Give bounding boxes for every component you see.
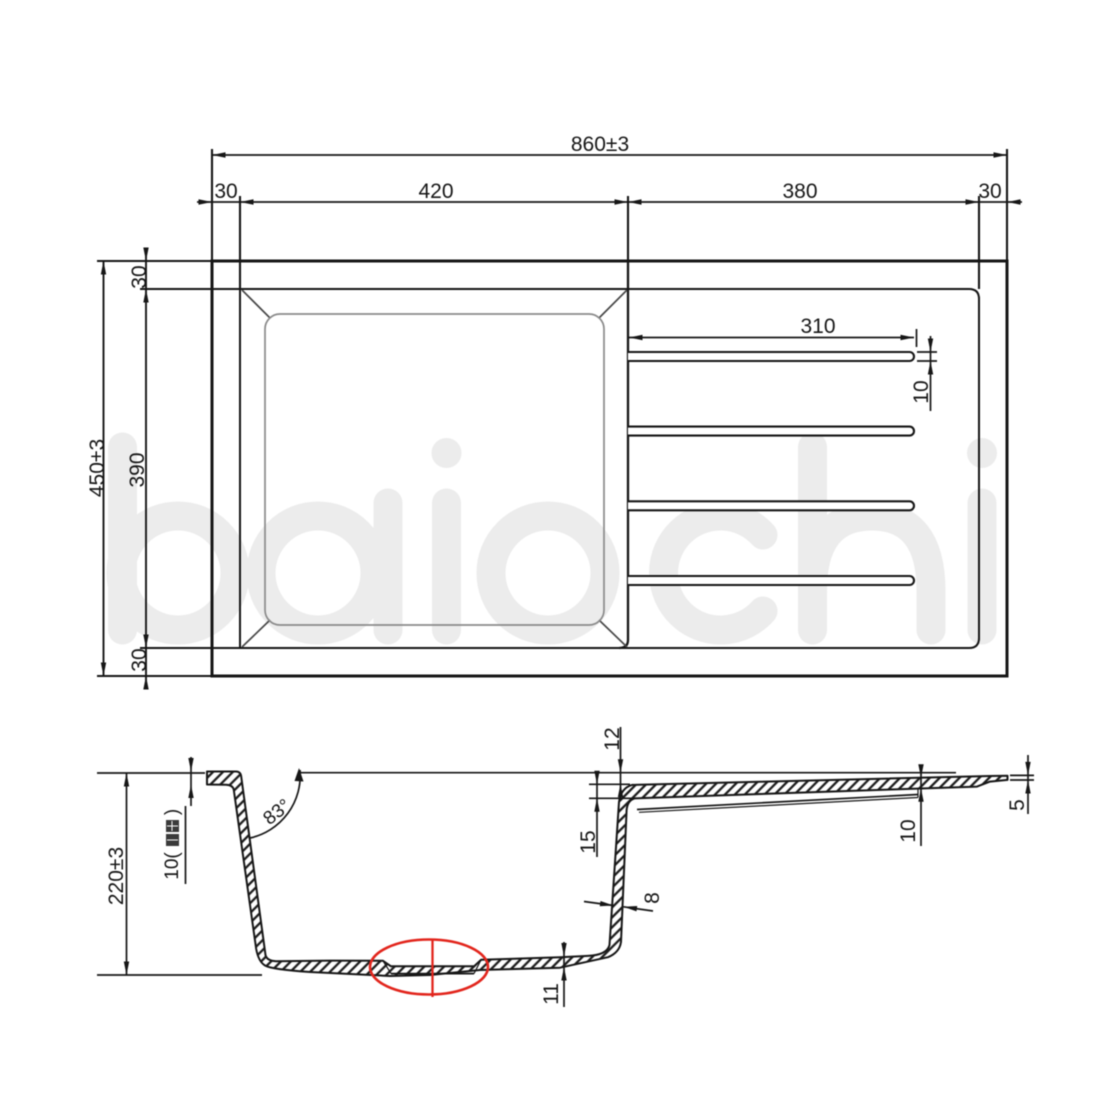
svg-text:420: 420 — [418, 180, 453, 203]
svg-text:10(: 10( — [162, 852, 183, 880]
svg-text:10: 10 — [910, 380, 933, 403]
svg-text:310: 310 — [800, 315, 835, 338]
svg-text:10: 10 — [897, 819, 920, 842]
svg-text:): ) — [162, 809, 183, 815]
svg-text:390: 390 — [126, 452, 149, 487]
svg-text:15: 15 — [577, 830, 600, 853]
svg-text:8: 8 — [641, 892, 664, 904]
svg-text:30: 30 — [214, 180, 237, 203]
svg-text:450±3: 450±3 — [86, 439, 109, 497]
svg-text:220±3: 220±3 — [105, 847, 128, 905]
svg-text:12: 12 — [601, 727, 624, 750]
svg-text:5: 5 — [1006, 799, 1029, 811]
svg-text:30: 30 — [128, 265, 151, 288]
svg-text:11: 11 — [540, 983, 563, 1005]
svg-text:30: 30 — [978, 180, 1001, 203]
svg-text:30: 30 — [128, 648, 151, 671]
svg-text:860±3: 860±3 — [571, 133, 629, 156]
svg-text:380: 380 — [782, 180, 817, 203]
